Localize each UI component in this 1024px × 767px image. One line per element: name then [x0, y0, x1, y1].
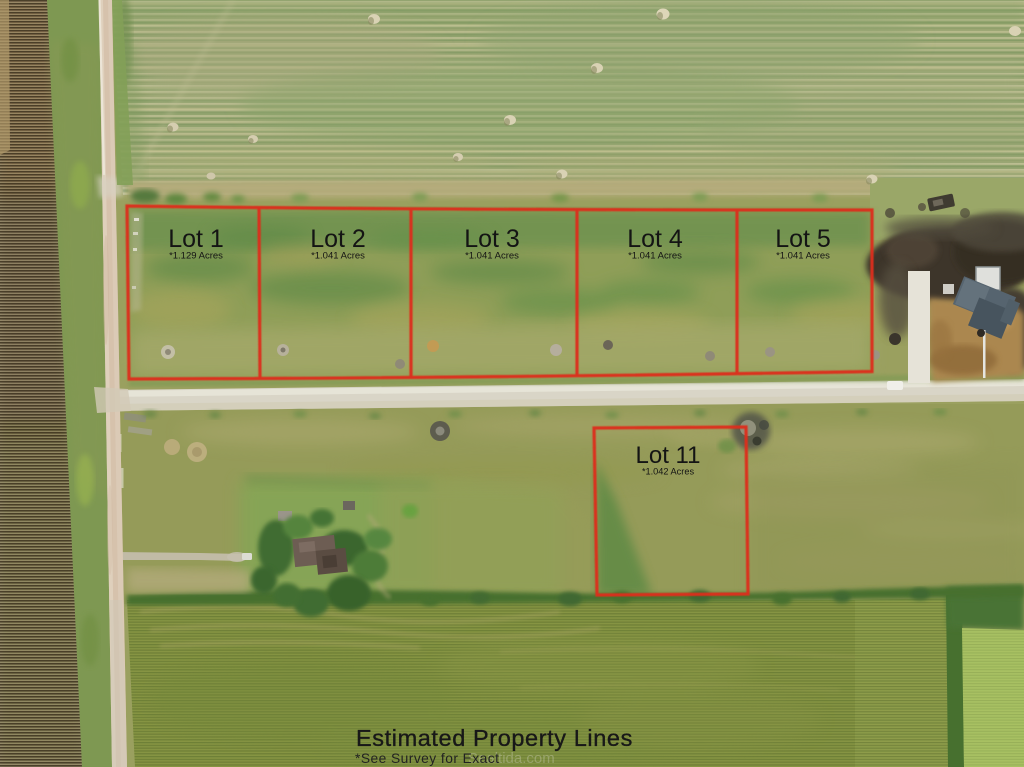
svg-text:Estimated Property Lines: Estimated Property Lines: [356, 725, 633, 751]
svg-text:*1.041 Acres: *1.041 Acres: [311, 251, 365, 262]
svg-text:Lot 11: Lot 11: [636, 442, 701, 469]
svg-text:Lot 2: Lot 2: [310, 225, 366, 253]
svg-text:*1.129 Acres: *1.129 Acres: [169, 251, 223, 262]
svg-text:*1.042 Acres: *1.042 Acres: [642, 467, 695, 477]
svg-text:Lot 1: Lot 1: [168, 225, 224, 253]
svg-text:Lot 3: Lot 3: [464, 225, 520, 253]
svg-text:Lot 4: Lot 4: [627, 225, 683, 253]
svg-text:Lot 5: Lot 5: [775, 225, 831, 253]
svg-text:*1.041 Acres: *1.041 Acres: [628, 251, 682, 262]
svg-text:*See Survey for Exact: *See Survey for Exact: [355, 751, 499, 766]
svg-text:*1.041 Acres: *1.041 Acres: [465, 251, 519, 262]
svg-text:*1.041 Acres: *1.041 Acres: [776, 251, 830, 262]
